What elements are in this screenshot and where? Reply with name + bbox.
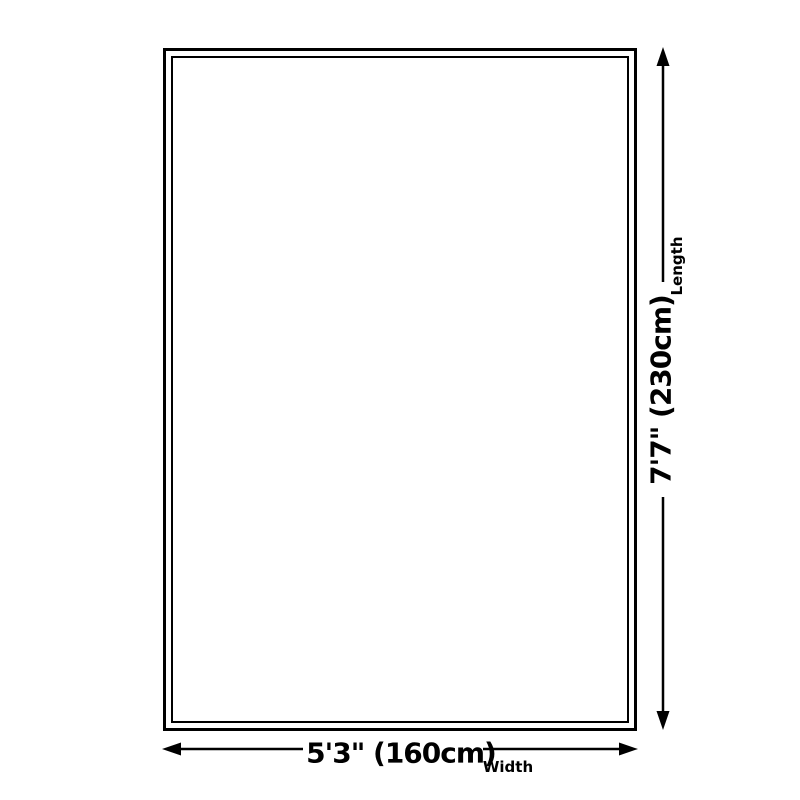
- rug-outline: [163, 48, 637, 731]
- arrow-left-head-icon: [162, 743, 181, 756]
- width-axis-label: Width: [483, 758, 533, 776]
- arrow-up-head-icon: [657, 47, 670, 66]
- rug-size-diagram: 7'7" (230cm) Length 5'3" (160cm) Width: [0, 0, 800, 800]
- arrow-down-head-icon: [657, 711, 670, 730]
- length-axis-label: Length: [668, 237, 686, 296]
- length-dimension-text: 7'7" (230cm): [645, 295, 678, 485]
- arrow-right-head-icon: [619, 743, 638, 756]
- rug-inner-border: [171, 56, 629, 723]
- width-dimension-text: 5'3" (160cm): [306, 737, 496, 770]
